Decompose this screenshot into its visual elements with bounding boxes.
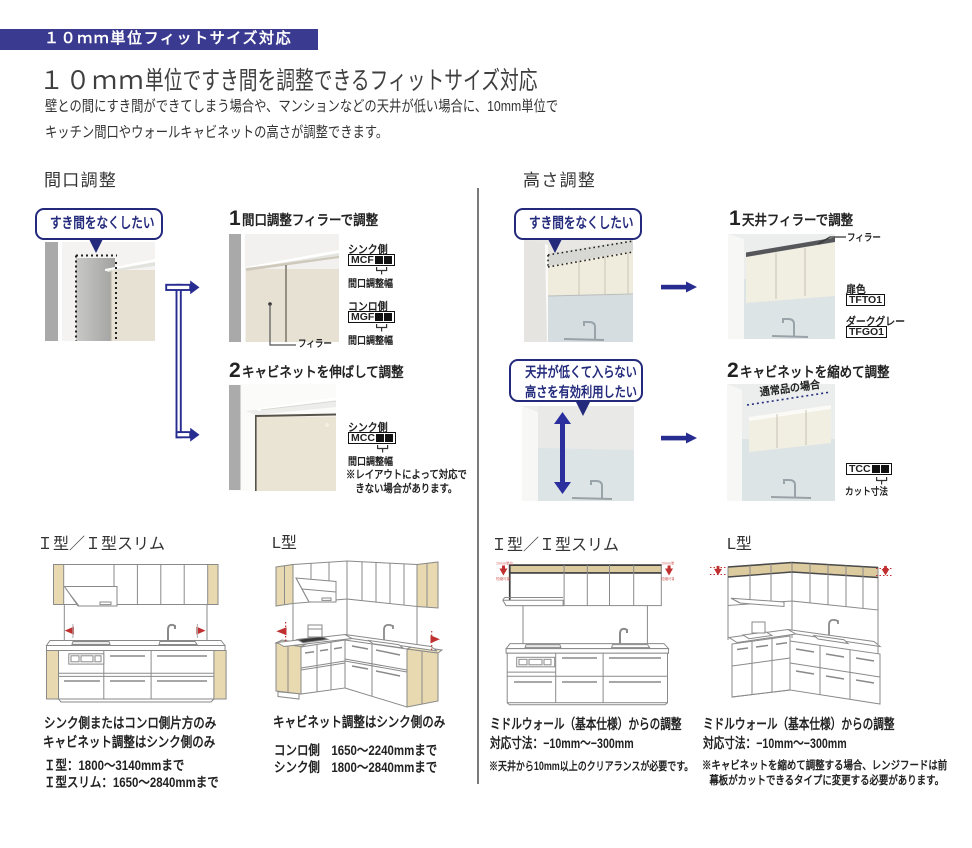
svg-text:10mm単位: 10mm単位: [661, 561, 674, 566]
svg-text:短縮可能: 短縮可能: [496, 576, 511, 581]
svg-text:10mm単位: 10mm単位: [496, 561, 514, 566]
svg-text:短縮可能: 短縮可能: [661, 576, 674, 581]
